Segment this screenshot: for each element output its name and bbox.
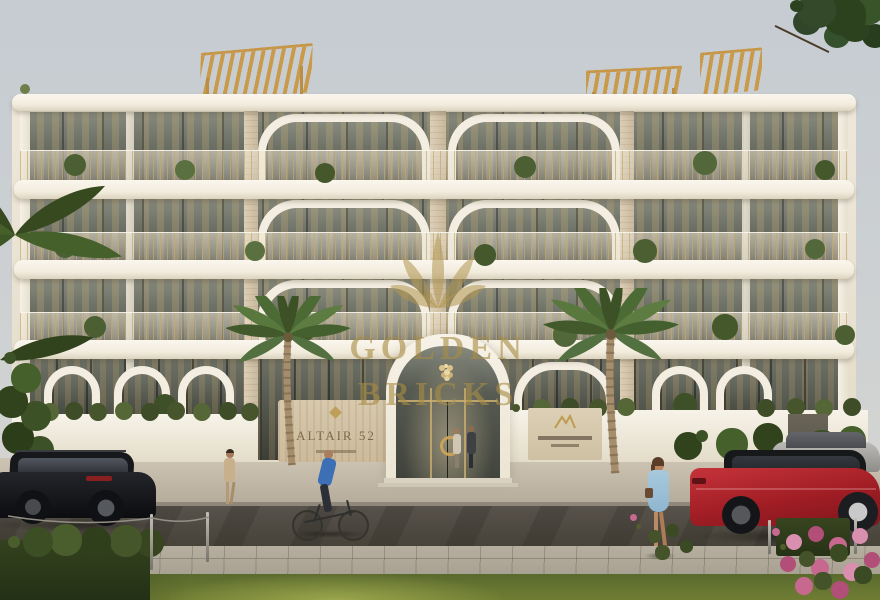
- floor-slab: [14, 260, 854, 279]
- pedestrian-woman-right: [640, 456, 680, 560]
- balcony-railing: [20, 150, 848, 184]
- person-bag: [645, 488, 653, 498]
- car-taillight: [692, 478, 706, 484]
- pergola-leg: [300, 66, 303, 94]
- flower-bush-center-stems: [636, 524, 641, 529]
- person-shadow: [644, 552, 676, 560]
- car-taillight: [86, 476, 112, 481]
- fence-post: [768, 520, 771, 554]
- rooftop-greenery: [20, 84, 30, 94]
- fence-post: [854, 518, 857, 554]
- palm-tree-entrance-right: [532, 288, 692, 478]
- floor-slab: [12, 94, 856, 111]
- rider-jacket: [317, 457, 337, 488]
- person-legs: [659, 512, 667, 546]
- background-palm-left: [0, 160, 130, 460]
- person-body: [453, 434, 461, 454]
- left-bushes: [4, 352, 16, 364]
- person-legs: [455, 454, 459, 468]
- flower-bush-right: [772, 528, 780, 536]
- palm-tree-entrance-left: [214, 296, 364, 468]
- bicycle-wheel: [292, 510, 323, 541]
- car-wheel: [722, 496, 760, 534]
- cyclist: [292, 448, 370, 540]
- fence-chain: [0, 510, 260, 536]
- person-body: [224, 458, 235, 482]
- hedge-top-left: [8, 536, 20, 548]
- flower-bush-right-stems: [780, 544, 786, 550]
- entrance-step: [378, 483, 518, 487]
- person-legs: [229, 482, 235, 504]
- person-at-entrance: [466, 426, 477, 470]
- person-at-entrance: [452, 428, 462, 470]
- render-canvas: ALTAIR 52: [0, 0, 880, 600]
- person-legs: [226, 482, 229, 504]
- hedge-planter-left: [0, 540, 150, 600]
- person-legs: [469, 454, 473, 468]
- person-hair: [226, 449, 234, 453]
- hedge-planter-right: [776, 518, 850, 556]
- balcony-plants: [0, 0, 10, 10]
- door-transom-bar: [398, 400, 498, 402]
- flower-bush-center: [630, 514, 637, 521]
- entrance-glow: [396, 346, 500, 480]
- floor-slab: [14, 180, 854, 199]
- rooftop-pergola-right: [700, 47, 762, 95]
- car-beltline: [696, 488, 876, 490]
- pedestrian-woman-left: [220, 450, 242, 512]
- hedge-row-right: [512, 404, 520, 412]
- rider-legs: [320, 484, 333, 513]
- tree-branch: [790, 0, 804, 12]
- person-body: [467, 432, 476, 454]
- grass-sunlight-patch: [170, 574, 500, 600]
- person-legs: [654, 512, 658, 546]
- chandelier: [444, 364, 448, 368]
- car-roof-rail: [16, 450, 126, 452]
